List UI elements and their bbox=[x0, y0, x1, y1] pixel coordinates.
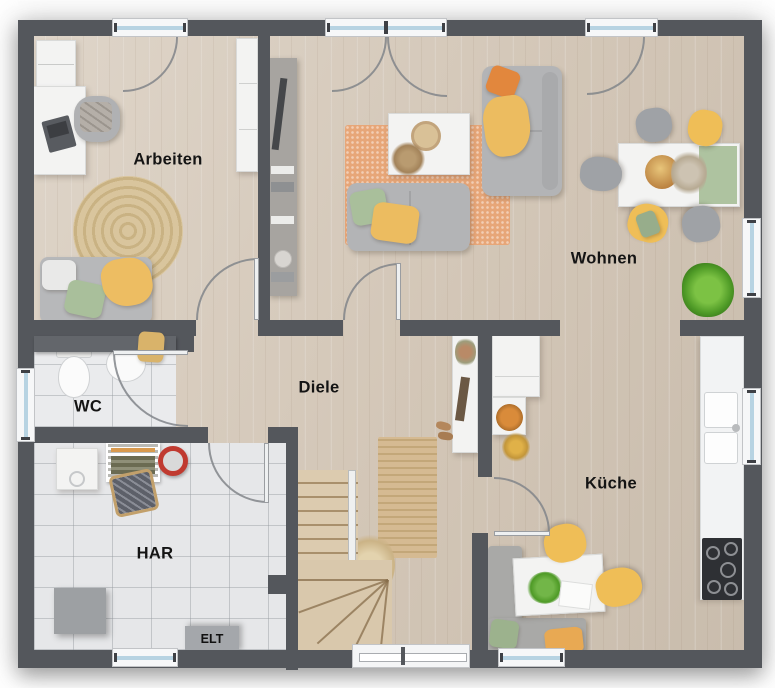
hall-console bbox=[452, 330, 478, 453]
elt-label: ELT bbox=[201, 632, 224, 646]
utility-unit bbox=[54, 588, 106, 634]
burner bbox=[706, 546, 720, 560]
arbeiten-door-swing bbox=[196, 258, 258, 320]
laundry-basket bbox=[108, 468, 160, 518]
wall-diele-kueche-upper bbox=[478, 336, 492, 477]
bookshelf bbox=[268, 58, 297, 296]
leaning-mirror bbox=[272, 78, 288, 150]
burner bbox=[707, 580, 721, 594]
burner bbox=[724, 582, 738, 596]
washing-machine bbox=[56, 448, 98, 490]
arbeiten-door-leaf bbox=[254, 258, 259, 320]
dried-plant bbox=[391, 141, 425, 177]
console-flowers bbox=[455, 337, 476, 367]
cooktop bbox=[702, 538, 742, 600]
red-bucket bbox=[158, 446, 188, 476]
toilet-bowl bbox=[58, 356, 90, 398]
wall-arbeiten-wohnen bbox=[258, 36, 270, 336]
pillow-yellow bbox=[370, 201, 421, 245]
office-cabinet-divider bbox=[38, 64, 74, 65]
wardrobe bbox=[236, 38, 258, 172]
entry-door-leaf bbox=[359, 653, 467, 662]
wall-diele-kueche-lower bbox=[472, 533, 488, 650]
dining-table bbox=[618, 143, 740, 207]
kitchen-faucet bbox=[732, 424, 740, 432]
dining-chair-gray bbox=[680, 204, 723, 245]
laptop-screen bbox=[46, 121, 69, 139]
sofa-backrest bbox=[542, 72, 558, 190]
window-glass bbox=[117, 656, 173, 660]
wohnen-door-swing bbox=[343, 263, 400, 320]
tall-cabinet bbox=[492, 333, 540, 397]
room-label-kueche: Küche bbox=[585, 475, 637, 494]
chimney-block bbox=[268, 575, 288, 594]
potted-plant bbox=[682, 263, 734, 317]
terrace-door-wohnen bbox=[325, 18, 447, 37]
office-chair bbox=[74, 96, 120, 142]
coffee-table bbox=[388, 113, 470, 175]
laundry-orange bbox=[111, 448, 155, 452]
shoes bbox=[435, 420, 451, 431]
room-label-wohnen: Wohnen bbox=[571, 250, 638, 269]
books bbox=[271, 166, 294, 174]
kueche-door-swing bbox=[494, 477, 550, 533]
wardrobe-door-line bbox=[239, 83, 257, 84]
burner bbox=[724, 542, 738, 556]
window-arbeiten bbox=[112, 18, 188, 37]
shoes bbox=[438, 431, 454, 441]
papers bbox=[558, 580, 593, 610]
window-glass bbox=[503, 656, 560, 660]
har-door-leaf bbox=[264, 443, 269, 503]
wohnen-door-leaf bbox=[396, 263, 401, 320]
window-glass bbox=[117, 26, 183, 30]
window-wohnen-top bbox=[585, 18, 658, 37]
wall-wohnen-south bbox=[400, 320, 560, 336]
stairs-winder bbox=[298, 560, 392, 652]
dried-flowers bbox=[671, 149, 707, 197]
entry-door bbox=[352, 644, 470, 668]
kueche-door-leaf bbox=[494, 531, 550, 536]
washer-door bbox=[69, 471, 85, 487]
window-glass bbox=[590, 26, 653, 30]
office-cabinet bbox=[36, 40, 76, 90]
wall-har-east bbox=[286, 427, 298, 670]
window-glass bbox=[750, 393, 754, 460]
building-outline: ELT bbox=[18, 20, 762, 668]
dining-chair-gray bbox=[579, 155, 624, 193]
wohnen-window-door-swing bbox=[587, 37, 645, 95]
wardrobe-door-line bbox=[239, 129, 257, 130]
floor-plan: ELT bbox=[0, 0, 775, 688]
window-glass bbox=[750, 223, 754, 293]
burner bbox=[720, 562, 736, 578]
bench-pillow-green bbox=[488, 618, 520, 650]
wall-kueche-north bbox=[680, 320, 744, 336]
console-decor bbox=[455, 377, 470, 422]
kitchen-sink bbox=[704, 392, 738, 428]
hallway-runner-rug bbox=[378, 437, 437, 558]
stair-tread-line bbox=[298, 579, 388, 581]
window-mullion bbox=[384, 21, 388, 34]
wall-arbeiten-south-left bbox=[34, 320, 196, 336]
room-label-arbeiten: Arbeiten bbox=[133, 151, 202, 170]
terrace-door-swing-left bbox=[332, 37, 387, 92]
kitchen-plant bbox=[502, 432, 530, 462]
window-wohnen-right bbox=[742, 218, 761, 298]
terrace-door-swing-right bbox=[387, 37, 447, 97]
room-label-diele: Diele bbox=[299, 379, 340, 398]
entry-door-handle bbox=[401, 647, 405, 665]
books bbox=[271, 216, 294, 224]
window-kueche-bottom bbox=[498, 648, 565, 667]
books bbox=[271, 272, 294, 282]
window-har bbox=[112, 648, 178, 667]
exterior-wall-right bbox=[744, 20, 762, 668]
kitchen-sink bbox=[704, 432, 738, 464]
wc-door-leaf bbox=[113, 350, 188, 355]
window-kueche-right bbox=[742, 388, 761, 465]
exterior-wall-left bbox=[18, 20, 34, 668]
elt-box: ELT bbox=[185, 626, 239, 652]
dining-chair-gray bbox=[634, 106, 674, 145]
room-label-wc: WC bbox=[74, 398, 102, 417]
books bbox=[271, 182, 294, 192]
room-label-har: HAR bbox=[137, 545, 174, 564]
stair-tread-line bbox=[317, 579, 389, 644]
wall-arbeiten-south-right bbox=[258, 320, 343, 336]
window-glass bbox=[24, 373, 28, 437]
window-wc bbox=[16, 368, 35, 442]
arbeiten-window-door-swing bbox=[123, 37, 178, 92]
kitchen-table bbox=[513, 554, 606, 617]
wall-wc-har-left bbox=[34, 427, 208, 443]
bowl bbox=[274, 250, 292, 268]
fruit-bowl bbox=[496, 404, 523, 431]
cabinet-door-line bbox=[495, 376, 539, 377]
plaid-blanket bbox=[80, 102, 112, 132]
